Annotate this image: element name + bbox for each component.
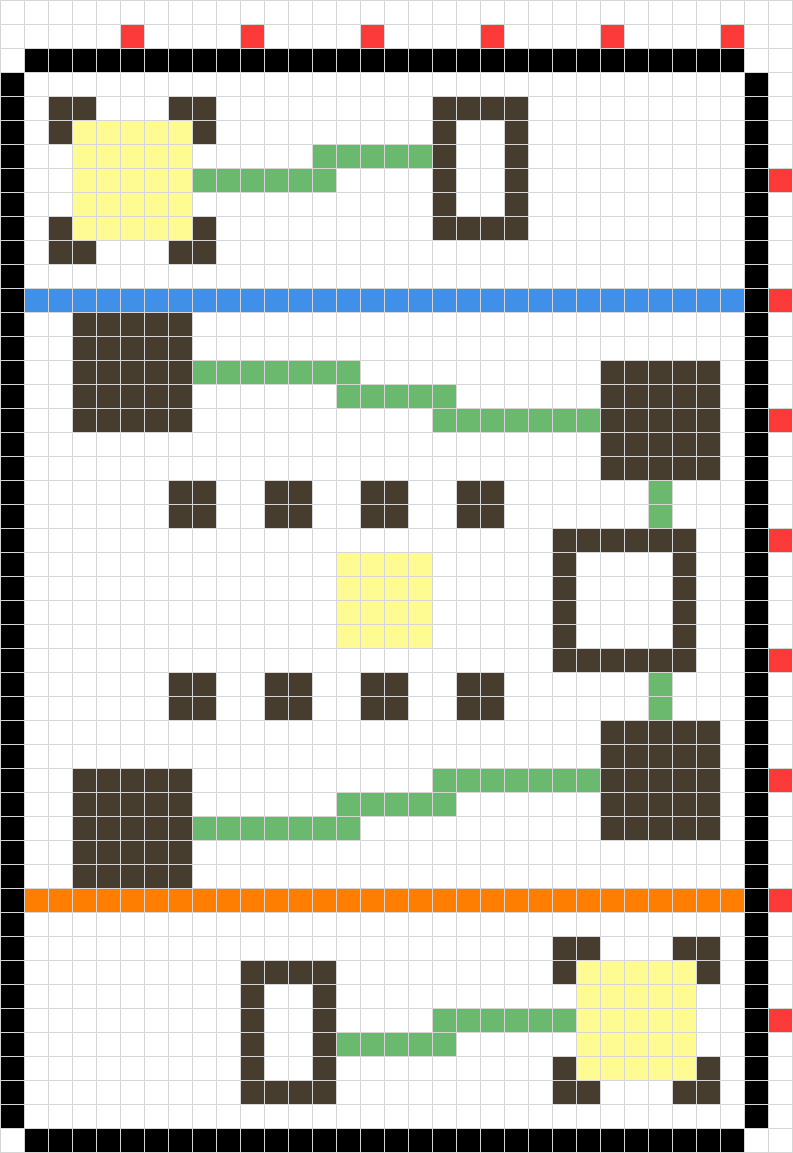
cell-empty[interactable] <box>121 625 144 648</box>
cell-empty[interactable] <box>241 841 264 864</box>
cell-empty[interactable] <box>265 265 288 288</box>
cell-empty[interactable] <box>625 121 648 144</box>
cell-empty[interactable] <box>721 817 744 840</box>
cell-empty[interactable] <box>433 625 456 648</box>
cell-empty[interactable] <box>97 1057 120 1080</box>
cell-blue-line[interactable] <box>505 289 528 312</box>
cell-empty[interactable] <box>553 145 576 168</box>
cell-empty[interactable] <box>433 865 456 888</box>
cell-empty[interactable] <box>49 673 72 696</box>
cell-empty[interactable] <box>361 865 384 888</box>
cell-wall[interactable] <box>505 1129 528 1152</box>
cell-green-path[interactable] <box>529 409 552 432</box>
cell-empty[interactable] <box>649 217 672 240</box>
cell-wall[interactable] <box>1 889 24 912</box>
cell-empty[interactable] <box>721 1 744 24</box>
cell-wall[interactable] <box>745 409 768 432</box>
cell-empty[interactable] <box>337 505 360 528</box>
cell-wall[interactable] <box>673 1129 696 1152</box>
cell-empty[interactable] <box>553 1105 576 1128</box>
cell-empty[interactable] <box>145 505 168 528</box>
cell-empty[interactable] <box>49 409 72 432</box>
cell-empty[interactable] <box>145 985 168 1008</box>
cell-empty[interactable] <box>73 25 96 48</box>
cell-empty[interactable] <box>601 337 624 360</box>
cell-empty[interactable] <box>481 145 504 168</box>
cell-empty[interactable] <box>241 385 264 408</box>
cell-empty[interactable] <box>529 241 552 264</box>
cell-empty[interactable] <box>721 553 744 576</box>
cell-brown-block[interactable] <box>673 769 696 792</box>
cell-empty[interactable] <box>721 769 744 792</box>
cell-empty[interactable] <box>553 433 576 456</box>
cell-brown-block[interactable] <box>73 337 96 360</box>
cell-empty[interactable] <box>97 1009 120 1032</box>
cell-empty[interactable] <box>601 1105 624 1128</box>
cell-yellow-block[interactable] <box>385 625 408 648</box>
cell-empty[interactable] <box>553 505 576 528</box>
cell-empty[interactable] <box>697 1033 720 1056</box>
cell-brown-block[interactable] <box>553 529 576 552</box>
cell-empty[interactable] <box>289 1033 312 1056</box>
cell-empty[interactable] <box>217 649 240 672</box>
cell-empty[interactable] <box>577 745 600 768</box>
cell-empty[interactable] <box>145 1033 168 1056</box>
cell-blue-line[interactable] <box>49 289 72 312</box>
cell-orange-line[interactable] <box>49 889 72 912</box>
cell-brown-block[interactable] <box>601 361 624 384</box>
cell-green-path[interactable] <box>313 145 336 168</box>
cell-empty[interactable] <box>121 937 144 960</box>
cell-empty[interactable] <box>265 625 288 648</box>
cell-empty[interactable] <box>73 1057 96 1080</box>
cell-brown-block[interactable] <box>697 1081 720 1104</box>
cell-brown-block[interactable] <box>649 361 672 384</box>
cell-wall[interactable] <box>169 49 192 72</box>
cell-empty[interactable] <box>721 1105 744 1128</box>
cell-empty[interactable] <box>409 985 432 1008</box>
cell-empty[interactable] <box>769 25 792 48</box>
cell-empty[interactable] <box>457 937 480 960</box>
cell-empty[interactable] <box>265 457 288 480</box>
cell-empty[interactable] <box>529 385 552 408</box>
cell-empty[interactable] <box>49 457 72 480</box>
cell-empty[interactable] <box>673 73 696 96</box>
cell-brown-block[interactable] <box>601 457 624 480</box>
cell-empty[interactable] <box>97 1033 120 1056</box>
cell-wall[interactable] <box>1 289 24 312</box>
cell-orange-line[interactable] <box>625 889 648 912</box>
cell-empty[interactable] <box>145 1057 168 1080</box>
cell-empty[interactable] <box>241 217 264 240</box>
cell-green-path[interactable] <box>337 793 360 816</box>
cell-wall[interactable] <box>1 937 24 960</box>
cell-empty[interactable] <box>769 145 792 168</box>
cell-brown-block[interactable] <box>193 121 216 144</box>
cell-empty[interactable] <box>529 1081 552 1104</box>
cell-empty[interactable] <box>361 313 384 336</box>
cell-empty[interactable] <box>721 217 744 240</box>
cell-brown-block[interactable] <box>697 1057 720 1080</box>
cell-blue-line[interactable] <box>601 289 624 312</box>
cell-empty[interactable] <box>577 97 600 120</box>
cell-empty[interactable] <box>601 577 624 600</box>
cell-empty[interactable] <box>505 1057 528 1080</box>
cell-empty[interactable] <box>505 1105 528 1128</box>
cell-empty[interactable] <box>241 409 264 432</box>
cell-empty[interactable] <box>265 97 288 120</box>
cell-brown-block[interactable] <box>49 241 72 264</box>
cell-empty[interactable] <box>289 409 312 432</box>
cell-empty[interactable] <box>697 169 720 192</box>
cell-yellow-block[interactable] <box>673 961 696 984</box>
cell-empty[interactable] <box>769 553 792 576</box>
cell-empty[interactable] <box>265 193 288 216</box>
cell-empty[interactable] <box>313 793 336 816</box>
cell-green-path[interactable] <box>313 817 336 840</box>
cell-empty[interactable] <box>697 601 720 624</box>
cell-empty[interactable] <box>217 409 240 432</box>
cell-empty[interactable] <box>145 241 168 264</box>
cell-empty[interactable] <box>481 361 504 384</box>
cell-empty[interactable] <box>361 73 384 96</box>
cell-empty[interactable] <box>265 337 288 360</box>
cell-empty[interactable] <box>193 1 216 24</box>
cell-brown-block[interactable] <box>313 985 336 1008</box>
cell-brown-block[interactable] <box>241 1009 264 1032</box>
cell-yellow-block[interactable] <box>577 1033 600 1056</box>
cell-empty[interactable] <box>481 529 504 552</box>
cell-yellow-block[interactable] <box>73 169 96 192</box>
cell-orange-line[interactable] <box>481 889 504 912</box>
cell-empty[interactable] <box>577 457 600 480</box>
cell-empty[interactable] <box>265 577 288 600</box>
cell-empty[interactable] <box>553 361 576 384</box>
cell-empty[interactable] <box>409 1081 432 1104</box>
cell-empty[interactable] <box>433 673 456 696</box>
cell-empty[interactable] <box>313 97 336 120</box>
cell-brown-block[interactable] <box>625 649 648 672</box>
cell-empty[interactable] <box>49 529 72 552</box>
cell-empty[interactable] <box>433 313 456 336</box>
cell-empty[interactable] <box>145 745 168 768</box>
cell-empty[interactable] <box>169 961 192 984</box>
cell-empty[interactable] <box>457 457 480 480</box>
cell-brown-block[interactable] <box>673 721 696 744</box>
cell-empty[interactable] <box>721 193 744 216</box>
cell-empty[interactable] <box>97 433 120 456</box>
cell-empty[interactable] <box>769 313 792 336</box>
cell-wall[interactable] <box>745 625 768 648</box>
cell-brown-block[interactable] <box>601 769 624 792</box>
cell-brown-block[interactable] <box>193 241 216 264</box>
cell-blue-line[interactable] <box>313 289 336 312</box>
cell-empty[interactable] <box>121 1057 144 1080</box>
cell-empty[interactable] <box>769 265 792 288</box>
cell-empty[interactable] <box>553 193 576 216</box>
cell-empty[interactable] <box>313 217 336 240</box>
cell-empty[interactable] <box>769 1129 792 1152</box>
cell-empty[interactable] <box>169 1057 192 1080</box>
cell-wall[interactable] <box>1 169 24 192</box>
cell-empty[interactable] <box>193 457 216 480</box>
cell-red-marker[interactable] <box>769 649 792 672</box>
cell-green-path[interactable] <box>577 409 600 432</box>
cell-wall[interactable] <box>1 481 24 504</box>
cell-empty[interactable] <box>505 505 528 528</box>
cell-empty[interactable] <box>241 577 264 600</box>
cell-yellow-block[interactable] <box>361 553 384 576</box>
cell-empty[interactable] <box>73 673 96 696</box>
cell-empty[interactable] <box>145 529 168 552</box>
cell-brown-block[interactable] <box>649 649 672 672</box>
cell-empty[interactable] <box>361 337 384 360</box>
cell-brown-block[interactable] <box>169 481 192 504</box>
cell-empty[interactable] <box>481 553 504 576</box>
cell-empty[interactable] <box>505 937 528 960</box>
cell-empty[interactable] <box>169 1 192 24</box>
cell-green-path[interactable] <box>385 793 408 816</box>
cell-brown-block[interactable] <box>601 745 624 768</box>
cell-empty[interactable] <box>361 193 384 216</box>
cell-empty[interactable] <box>73 433 96 456</box>
cell-wall[interactable] <box>745 841 768 864</box>
cell-brown-block[interactable] <box>145 361 168 384</box>
cell-empty[interactable] <box>505 1081 528 1104</box>
cell-red-marker[interactable] <box>769 289 792 312</box>
cell-brown-block[interactable] <box>169 865 192 888</box>
cell-brown-block[interactable] <box>265 505 288 528</box>
cell-brown-block[interactable] <box>649 433 672 456</box>
cell-empty[interactable] <box>97 1 120 24</box>
cell-empty[interactable] <box>121 673 144 696</box>
cell-wall[interactable] <box>745 745 768 768</box>
cell-empty[interactable] <box>601 121 624 144</box>
cell-empty[interactable] <box>553 25 576 48</box>
cell-empty[interactable] <box>625 337 648 360</box>
cell-yellow-block[interactable] <box>577 1057 600 1080</box>
cell-empty[interactable] <box>481 937 504 960</box>
cell-empty[interactable] <box>553 241 576 264</box>
cell-yellow-block[interactable] <box>97 217 120 240</box>
cell-empty[interactable] <box>433 745 456 768</box>
cell-empty[interactable] <box>409 745 432 768</box>
cell-yellow-block[interactable] <box>169 169 192 192</box>
cell-green-path[interactable] <box>505 409 528 432</box>
cell-empty[interactable] <box>217 1033 240 1056</box>
cell-brown-block[interactable] <box>673 457 696 480</box>
cell-blue-line[interactable] <box>265 289 288 312</box>
cell-empty[interactable] <box>505 625 528 648</box>
cell-brown-block[interactable] <box>697 433 720 456</box>
cell-wall[interactable] <box>745 97 768 120</box>
cell-empty[interactable] <box>721 505 744 528</box>
cell-empty[interactable] <box>769 193 792 216</box>
cell-empty[interactable] <box>625 1 648 24</box>
cell-empty[interactable] <box>673 697 696 720</box>
cell-brown-block[interactable] <box>385 481 408 504</box>
cell-empty[interactable] <box>481 73 504 96</box>
cell-empty[interactable] <box>337 73 360 96</box>
cell-yellow-block[interactable] <box>169 217 192 240</box>
cell-empty[interactable] <box>697 505 720 528</box>
cell-yellow-block[interactable] <box>97 193 120 216</box>
cell-empty[interactable] <box>601 673 624 696</box>
cell-wall[interactable] <box>745 193 768 216</box>
cell-empty[interactable] <box>649 625 672 648</box>
cell-empty[interactable] <box>409 457 432 480</box>
cell-yellow-block[interactable] <box>601 1057 624 1080</box>
cell-empty[interactable] <box>1 49 24 72</box>
cell-green-path[interactable] <box>385 385 408 408</box>
cell-green-path[interactable] <box>433 409 456 432</box>
cell-empty[interactable] <box>313 409 336 432</box>
cell-empty[interactable] <box>721 913 744 936</box>
cell-empty[interactable] <box>481 121 504 144</box>
cell-empty[interactable] <box>49 865 72 888</box>
cell-empty[interactable] <box>697 913 720 936</box>
cell-empty[interactable] <box>745 1 768 24</box>
cell-empty[interactable] <box>217 505 240 528</box>
cell-brown-block[interactable] <box>433 97 456 120</box>
cell-yellow-block[interactable] <box>625 985 648 1008</box>
cell-empty[interactable] <box>217 97 240 120</box>
cell-empty[interactable] <box>145 673 168 696</box>
cell-empty[interactable] <box>217 145 240 168</box>
cell-empty[interactable] <box>649 193 672 216</box>
cell-empty[interactable] <box>49 841 72 864</box>
cell-brown-block[interactable] <box>121 337 144 360</box>
cell-empty[interactable] <box>673 913 696 936</box>
cell-empty[interactable] <box>697 697 720 720</box>
cell-empty[interactable] <box>577 673 600 696</box>
cell-empty[interactable] <box>25 529 48 552</box>
cell-empty[interactable] <box>193 145 216 168</box>
cell-empty[interactable] <box>649 841 672 864</box>
cell-brown-block[interactable] <box>265 1081 288 1104</box>
cell-empty[interactable] <box>145 721 168 744</box>
cell-red-marker[interactable] <box>121 25 144 48</box>
cell-empty[interactable] <box>97 553 120 576</box>
cell-empty[interactable] <box>649 937 672 960</box>
cell-empty[interactable] <box>337 1105 360 1128</box>
cell-green-path[interactable] <box>409 385 432 408</box>
cell-empty[interactable] <box>673 1105 696 1128</box>
cell-orange-line[interactable] <box>121 889 144 912</box>
cell-green-path[interactable] <box>337 385 360 408</box>
cell-brown-block[interactable] <box>649 385 672 408</box>
cell-green-path[interactable] <box>433 1009 456 1032</box>
cell-empty[interactable] <box>121 913 144 936</box>
cell-brown-block[interactable] <box>385 505 408 528</box>
cell-yellow-block[interactable] <box>601 985 624 1008</box>
cell-empty[interactable] <box>289 313 312 336</box>
cell-empty[interactable] <box>25 553 48 576</box>
cell-brown-block[interactable] <box>505 217 528 240</box>
cell-empty[interactable] <box>769 481 792 504</box>
cell-empty[interactable] <box>337 745 360 768</box>
cell-empty[interactable] <box>553 817 576 840</box>
cell-empty[interactable] <box>433 721 456 744</box>
cell-empty[interactable] <box>409 937 432 960</box>
cell-blue-line[interactable] <box>337 289 360 312</box>
cell-wall[interactable] <box>1 913 24 936</box>
cell-blue-line[interactable] <box>145 289 168 312</box>
cell-empty[interactable] <box>577 793 600 816</box>
cell-yellow-block[interactable] <box>337 577 360 600</box>
cell-wall[interactable] <box>1 409 24 432</box>
cell-empty[interactable] <box>529 553 552 576</box>
cell-yellow-block[interactable] <box>361 625 384 648</box>
cell-empty[interactable] <box>433 577 456 600</box>
cell-empty[interactable] <box>289 217 312 240</box>
cell-empty[interactable] <box>433 337 456 360</box>
cell-wall[interactable] <box>1 673 24 696</box>
cell-empty[interactable] <box>193 985 216 1008</box>
cell-empty[interactable] <box>241 913 264 936</box>
cell-green-path[interactable] <box>577 769 600 792</box>
cell-wall[interactable] <box>745 601 768 624</box>
cell-empty[interactable] <box>481 193 504 216</box>
cell-brown-block[interactable] <box>673 793 696 816</box>
cell-empty[interactable] <box>193 265 216 288</box>
cell-empty[interactable] <box>73 649 96 672</box>
cell-empty[interactable] <box>673 841 696 864</box>
cell-empty[interactable] <box>481 337 504 360</box>
cell-wall[interactable] <box>1 241 24 264</box>
cell-empty[interactable] <box>265 793 288 816</box>
cell-empty[interactable] <box>697 481 720 504</box>
cell-green-path[interactable] <box>337 145 360 168</box>
cell-empty[interactable] <box>457 241 480 264</box>
cell-empty[interactable] <box>361 169 384 192</box>
cell-empty[interactable] <box>697 553 720 576</box>
cell-empty[interactable] <box>313 241 336 264</box>
cell-empty[interactable] <box>217 697 240 720</box>
cell-empty[interactable] <box>553 385 576 408</box>
cell-orange-line[interactable] <box>433 889 456 912</box>
cell-empty[interactable] <box>97 649 120 672</box>
cell-empty[interactable] <box>697 1 720 24</box>
cell-brown-block[interactable] <box>73 817 96 840</box>
cell-empty[interactable] <box>385 457 408 480</box>
cell-orange-line[interactable] <box>97 889 120 912</box>
cell-green-path[interactable] <box>337 1033 360 1056</box>
cell-empty[interactable] <box>337 241 360 264</box>
cell-empty[interactable] <box>265 937 288 960</box>
cell-empty[interactable] <box>625 145 648 168</box>
cell-orange-line[interactable] <box>289 889 312 912</box>
cell-empty[interactable] <box>193 865 216 888</box>
cell-empty[interactable] <box>433 697 456 720</box>
cell-empty[interactable] <box>217 745 240 768</box>
cell-empty[interactable] <box>217 793 240 816</box>
cell-empty[interactable] <box>769 1 792 24</box>
cell-green-path[interactable] <box>433 793 456 816</box>
cell-brown-block[interactable] <box>433 169 456 192</box>
cell-empty[interactable] <box>625 169 648 192</box>
cell-empty[interactable] <box>457 145 480 168</box>
cell-brown-block[interactable] <box>673 601 696 624</box>
cell-empty[interactable] <box>577 121 600 144</box>
cell-green-path[interactable] <box>457 769 480 792</box>
cell-wall[interactable] <box>649 49 672 72</box>
cell-empty[interactable] <box>73 481 96 504</box>
cell-empty[interactable] <box>193 1009 216 1032</box>
cell-empty[interactable] <box>25 1057 48 1080</box>
cell-empty[interactable] <box>529 601 552 624</box>
cell-yellow-block[interactable] <box>409 601 432 624</box>
